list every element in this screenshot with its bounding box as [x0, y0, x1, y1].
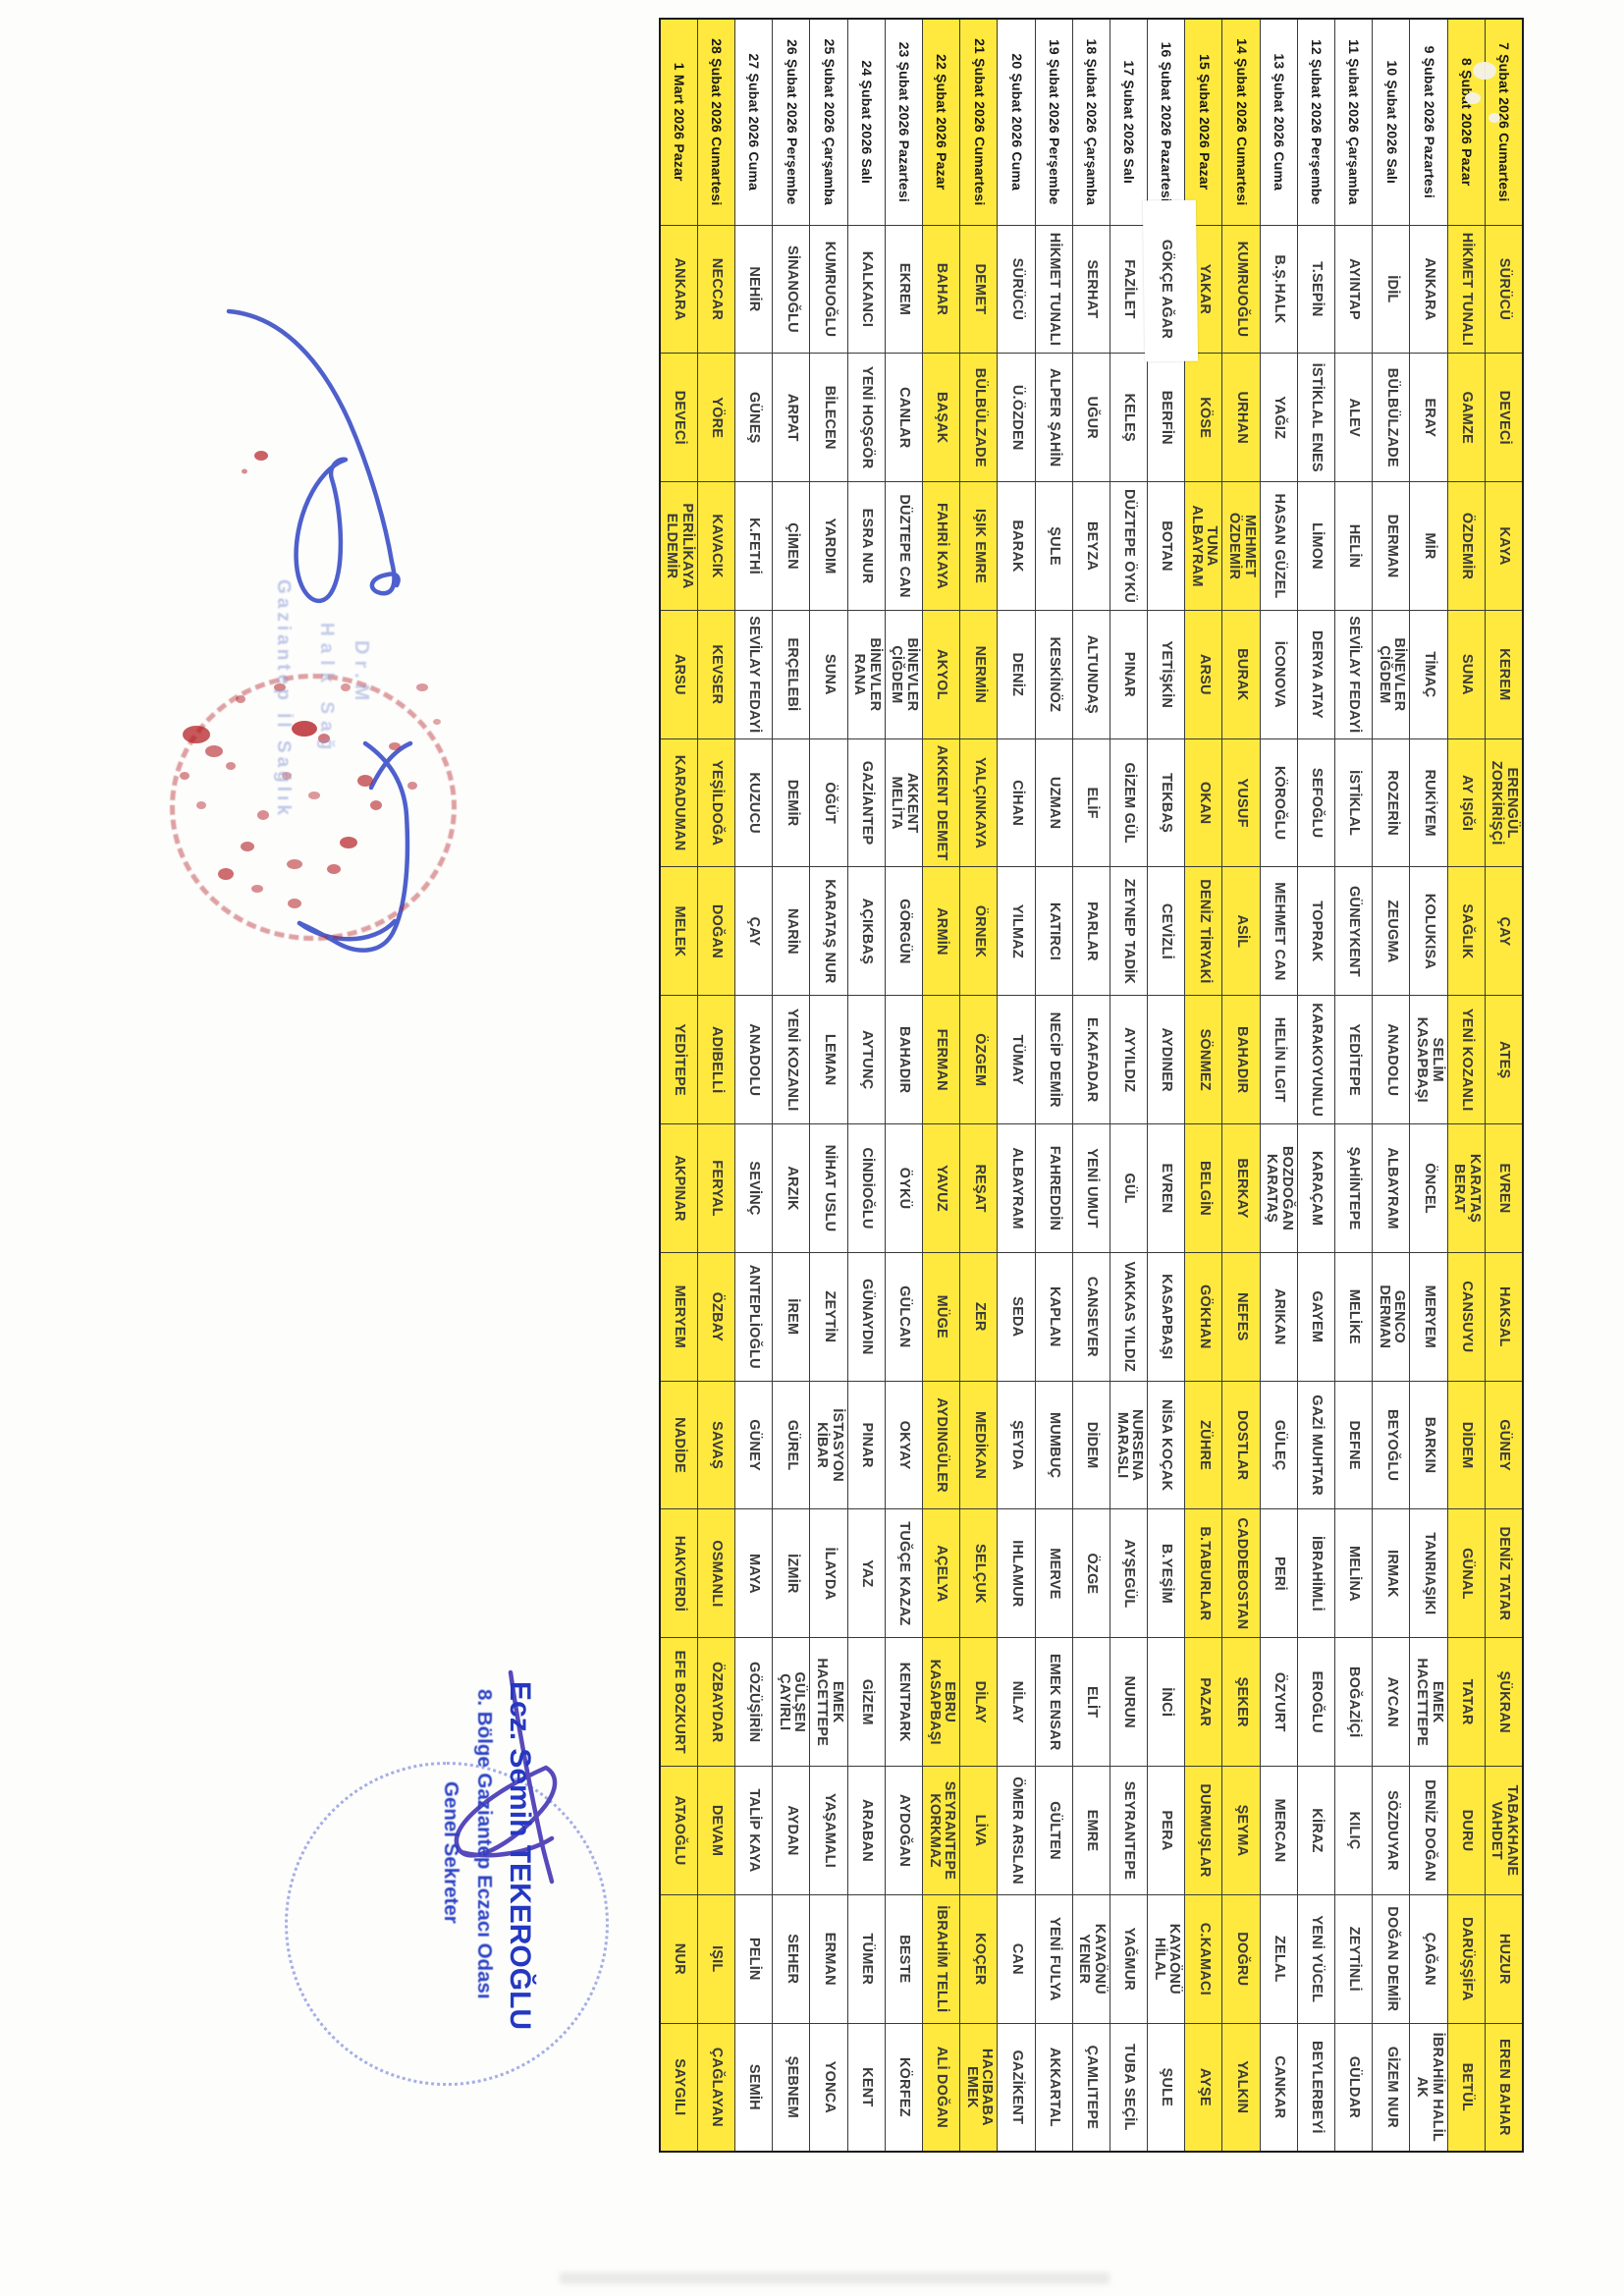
pharmacy-cell: DERMAN: [1373, 482, 1410, 611]
pharmacy-cell: ELİT: [1072, 1638, 1110, 1767]
pharmacy-cell: KAYA: [1485, 482, 1523, 611]
pharmacy-cell: CANSEVER: [1072, 1252, 1110, 1381]
pharmacy-cell: BEYZA: [1072, 482, 1110, 611]
date-row: 14 Şubat 2026 CumartesiKUMRUOĞLUURHANMEH…: [1222, 19, 1260, 2152]
pharmacy-cell: HİKMET TUNALI: [1035, 225, 1072, 354]
pharmacy-cell: ÖZBAYDAR: [697, 1638, 734, 1767]
date-row: 28 Şubat 2026 CumartesiNECCARYÖREKAVACIK…: [697, 19, 734, 2152]
pharmacy-cell: ARABAN: [847, 1767, 885, 1895]
date-cell: 26 Şubat 2026 Perşembe: [773, 19, 810, 225]
duty-roster-body: 7 Şubat 2026 CumartesiSÜRÜCÜDEVECİKAYAKE…: [660, 19, 1523, 2152]
pharmacy-cell: İCONOVA: [1260, 610, 1297, 738]
date-cell: 13 Şubat 2026 Cuma: [1260, 19, 1297, 225]
date-row: 7 Şubat 2026 CumartesiSÜRÜCÜDEVECİKAYAKE…: [1485, 19, 1523, 2152]
pharmacy-cell: ZER: [960, 1252, 998, 1381]
date-row: 17 Şubat 2026 SalıFAZİLETKELEŞDÜZTEPE ÖY…: [1110, 19, 1147, 2152]
pharmacy-cell: ARPAT: [773, 354, 810, 482]
pharmacy-cell: KOLUKISA: [1410, 867, 1447, 996]
pharmacy-cell: GÜREL: [773, 1381, 810, 1509]
pharmacy-cell: ŞEKER: [1222, 1638, 1260, 1767]
pharmacy-cell: İZMİR: [773, 1509, 810, 1638]
pharmacy-cell: ŞEYDA: [998, 1381, 1035, 1509]
pharmacy-cell: AKKENT DEMET: [923, 738, 960, 867]
pharmacy-cell: KÖRFEZ: [885, 2023, 922, 2152]
date-row: 19 Şubat 2026 PerşembeHİKMET TUNALIALPER…: [1035, 19, 1072, 2152]
pharmacy-cell: KÖSE: [1185, 354, 1222, 482]
date-row: 1 Mart 2026 PazarANKARADEVECİPERİLİKAYA …: [660, 19, 698, 2152]
pharmacy-cell: MÜGE: [923, 1252, 960, 1381]
pharmacy-cell: T.SEPİN: [1297, 225, 1334, 354]
pharmacy-cell: ŞÜKRAN: [1485, 1638, 1523, 1767]
pharmacy-cell: KOÇER: [960, 1894, 998, 2023]
pharmacy-cell: DOĞAN DEMİR: [1373, 1894, 1410, 2023]
pharmacy-cell: OKYAY: [885, 1381, 922, 1509]
pharmacy-cell: SEHER: [773, 1894, 810, 2023]
pharmacy-cell: AKKARTAL: [1035, 2023, 1072, 2152]
pharmacy-cell: ŞULE: [1035, 482, 1072, 611]
pharmacy-cell: ERENGÜL ZORKİRİŞÇİ: [1485, 738, 1523, 867]
date-row: 24 Şubat 2026 SalıKALKANCIYENİ HOŞGÖRESR…: [847, 19, 885, 2152]
pharmacy-cell: AYCAN: [1373, 1638, 1410, 1767]
date-row: 21 Şubat 2026 CumartesiDEMETBÜLBÜLZADEIŞ…: [960, 19, 998, 2152]
pharmacy-cell: İBRAHİMLİ: [1297, 1509, 1334, 1638]
pharmacy-cell: GÜNEŞ: [735, 354, 773, 482]
pharmacy-cell: TATAR: [1447, 1638, 1485, 1767]
pharmacy-cell: HASAN GÜZEL: [1260, 482, 1297, 611]
pharmacy-cell: K.FETHİ: [735, 482, 773, 611]
pharmacy-cell: KUZUCU: [735, 738, 773, 867]
date-cell: 22 Şubat 2026 Pazar: [923, 19, 960, 225]
pharmacy-cell: DARÜŞŞİFA: [1447, 1894, 1485, 2023]
secretary-title: Genel Sekreter: [439, 1781, 462, 1924]
pharmacy-cell: SEYRANTEPE: [1110, 1767, 1147, 1895]
date-row: 12 Şubat 2026 PerşembeT.SEPİNİSTİKLAL EN…: [1297, 19, 1334, 2152]
pharmacy-cell: ÇAĞAN: [1410, 1894, 1447, 2023]
pharmacy-cell: BİNEVLER RANA: [847, 610, 885, 738]
pharmacy-cell: CİHAN: [998, 738, 1035, 867]
pharmacy-cell: SAYGILI: [660, 2023, 698, 2152]
pharmacy-cell: ANKARA: [660, 225, 698, 354]
pharmacy-cell: B.TABURLAR: [1185, 1509, 1222, 1638]
pharmacy-cell: ARIKAN: [1260, 1252, 1297, 1381]
pharmacy-cell: ANADOLU: [1373, 996, 1410, 1124]
scanned-duty-roster-page: { "roster": { "weekend_color": "#ffe93e"…: [0, 0, 1624, 2296]
pharmacy-cell: DEMİR: [773, 738, 810, 867]
pharmacy-cell: AYDAN: [773, 1767, 810, 1895]
pharmacy-cell: ARMİN: [923, 867, 960, 996]
pharmacy-cell: MERYEM: [1410, 1252, 1447, 1381]
pharmacy-cell: GÜNEY: [735, 1381, 773, 1509]
pharmacy-cell: YENİ FULYA: [1035, 1894, 1072, 2023]
pharmacy-cell: SUNA: [1447, 610, 1485, 738]
duty-roster-table: 7 Şubat 2026 CumartesiSÜRÜCÜDEVECİKAYAKE…: [659, 18, 1524, 2153]
pharmacy-cell: NİHAT USLU: [810, 1124, 847, 1253]
pharmacy-cell: YAVUZ: [923, 1124, 960, 1253]
pharmacy-cell: ANTEPLİOĞLU: [735, 1252, 773, 1381]
pharmacy-cell: DURU: [1447, 1767, 1485, 1895]
rotated-table-region: 7 Şubat 2026 CumartesiSÜRÜCÜDEVECİKAYAKE…: [682, 18, 1524, 2151]
pharmacy-cell: SERHAT: [1072, 225, 1110, 354]
pharmacy-cell: AKKENT MELİTA: [885, 738, 922, 867]
pharmacy-cell: BELGİN: [1185, 1124, 1222, 1253]
pharmacy-cell: CANLAR: [885, 354, 922, 482]
pharmacy-cell: BAHAR: [923, 225, 960, 354]
pharmacy-cell: GAZİANTEP: [847, 738, 885, 867]
pharmacy-cell: KENTPARK: [885, 1638, 922, 1767]
date-row: 11 Şubat 2026 ÇarşambaAYINTAPALEVHELİNSE…: [1335, 19, 1373, 2152]
pharmacy-cell: GÜL: [1110, 1124, 1147, 1253]
pharmacy-cell: ATAOĞLU: [660, 1767, 698, 1895]
pharmacy-cell: SEVİNÇ: [735, 1124, 773, 1253]
pharmacy-cell: ALBAYRAM: [1373, 1124, 1410, 1253]
pharmacy-cell: GAZİ MUHTAR: [1297, 1381, 1334, 1509]
pharmacy-cell: İSTİKLAL: [1335, 738, 1373, 867]
faint-stamp-line-3: Dr.M: [350, 640, 372, 706]
pharmacy-cell: KAYAÖNÜ HİLAL: [1148, 1894, 1185, 2023]
pharmacy-cell: AY IŞIĞI: [1447, 738, 1485, 867]
pharmacy-cell: KÖROĞLU: [1260, 738, 1297, 867]
date-row: 8 Şubat 2026 PazarHİKMET TUNALIGAMZEÖZDE…: [1447, 19, 1485, 2152]
pharmacy-cell: UĞUR: [1072, 354, 1110, 482]
pharmacy-cell: EMRE: [1072, 1767, 1110, 1895]
pharmacy-cell: KENT: [847, 2023, 885, 2152]
pharmacy-cell: BESTE: [885, 1894, 922, 2023]
pharmacy-cell: CİNDİOĞLU: [847, 1124, 885, 1253]
pharmacy-cell: TOPRAK: [1297, 867, 1334, 996]
date-cell: 12 Şubat 2026 Perşembe: [1297, 19, 1334, 225]
pharmacy-cell: GÜLDAR: [1335, 2023, 1373, 2152]
pharmacy-cell: ÖĞÜT: [810, 738, 847, 867]
pharmacy-cell: BAHADIR: [885, 996, 922, 1124]
pharmacy-cell: FERMAN: [923, 996, 960, 1124]
pharmacy-cell: SEFOĞLU: [1297, 738, 1334, 867]
date-cell: 28 Şubat 2026 Cumartesi: [697, 19, 734, 225]
correction-slip-text: GÖKÇE AĞAR: [1159, 240, 1174, 339]
pharmacy-cell: ALTUNDAŞ: [1072, 610, 1110, 738]
date-cell: 27 Şubat 2026 Cuma: [735, 19, 773, 225]
pharmacy-cell: ŞEBNEM: [773, 2023, 810, 2152]
pharmacy-cell: SÜRÜCÜ: [1485, 225, 1523, 354]
pharmacy-cell: PINAR: [847, 1381, 885, 1509]
pharmacy-cell: YENİ KOZANLI: [773, 996, 810, 1124]
pharmacy-cell: YAZ: [847, 1509, 885, 1638]
date-cell: 19 Şubat 2026 Perşembe: [1035, 19, 1072, 225]
pharmacy-cell: UZMAN: [1035, 738, 1072, 867]
pharmacy-cell: AYTUNÇ: [847, 996, 885, 1124]
pharmacy-cell: HACIBABA EMEK: [960, 2023, 998, 2152]
date-cell: 8 Şubat 2026 Pazar: [1447, 19, 1485, 225]
pharmacy-cell: İBRAHİM TELLİ: [923, 1894, 960, 2023]
pharmacy-cell: HUZUR: [1485, 1894, 1523, 2023]
pharmacy-cell: REŞAT: [960, 1124, 998, 1253]
pharmacy-cell: ANADOLU: [735, 996, 773, 1124]
pharmacy-cell: BETÜL: [1447, 2023, 1485, 2152]
pharmacy-cell: FAZİLET: [1110, 225, 1147, 354]
pharmacy-cell: KARAKOYUNLU: [1297, 996, 1334, 1124]
pharmacy-cell: EROĞLU: [1297, 1638, 1334, 1767]
date-cell: 11 Şubat 2026 Çarşamba: [1335, 19, 1373, 225]
pharmacy-cell: MELİNA: [1335, 1509, 1373, 1638]
pharmacy-cell: DİLAY: [960, 1638, 998, 1767]
pharmacy-cell: AYDOĞAN: [885, 1767, 922, 1895]
pharmacy-cell: NİLAY: [998, 1638, 1035, 1767]
pharmacy-cell: SEYRANTEPE KORKMAZ: [923, 1767, 960, 1895]
pharmacy-cell: ADIBELLİ: [697, 996, 734, 1124]
date-cell: 18 Şubat 2026 Çarşamba: [1072, 19, 1110, 225]
pharmacy-cell: TUNA ALBAYRAM: [1185, 482, 1222, 611]
date-cell: 20 Şubat 2026 Cuma: [998, 19, 1035, 225]
pharmacy-cell: TUBA SEÇİL: [1110, 2023, 1147, 2152]
pharmacy-cell: PAZAR: [1185, 1638, 1222, 1767]
date-row: 27 Şubat 2026 CumaNEHİRGÜNEŞK.FETHİSEVİL…: [735, 19, 773, 2152]
pharmacy-cell: NUR: [660, 1894, 698, 2023]
pharmacy-cell: HİKMET TUNALI: [1447, 225, 1485, 354]
pharmacy-cell: DURMUŞLAR: [1185, 1767, 1222, 1895]
pharmacy-cell: BİNEVLER ÇİĞDEM: [1373, 610, 1410, 738]
pharmacy-cell: YILMAZ: [998, 867, 1035, 996]
pharmacy-cell: ERÇELEBİ: [773, 610, 810, 738]
pharmacy-cell: FERYAL: [697, 1124, 734, 1253]
pharmacy-cell: YAĞMUR: [1110, 1894, 1147, 2023]
pharmacy-cell: ESRA NUR: [847, 482, 885, 611]
pharmacy-cell: KAYAÖNÜ YENER: [1072, 1894, 1110, 2023]
pharmacy-cell: KESKİNÖZ: [1035, 610, 1072, 738]
pharmacy-cell: DEVAM: [697, 1767, 734, 1895]
pharmacy-cell: B.Ş.HALK: [1260, 225, 1297, 354]
pharmacy-cell: HAKSAL: [1485, 1252, 1523, 1381]
pharmacy-cell: MELİKE: [1335, 1252, 1373, 1381]
date-cell: 15 Şubat 2026 Pazar: [1185, 19, 1222, 225]
pharmacy-cell: IHLAMUR: [998, 1509, 1035, 1638]
scan-edge-artifact: [560, 2272, 1110, 2284]
pharmacy-cell: BEYOĞLU: [1373, 1381, 1410, 1509]
pharmacy-cell: AÇIKBAŞ: [847, 867, 885, 996]
pharmacy-cell: AYYILDIZ: [1110, 996, 1147, 1124]
pharmacy-cell: TÜMAY: [998, 996, 1035, 1124]
date-cell: 23 Şubat 2026 Pazartesi: [885, 19, 922, 225]
pharmacy-cell: SAVAŞ: [697, 1381, 734, 1509]
pharmacy-cell: AYŞEGÜL: [1110, 1509, 1147, 1638]
pharmacy-cell: YALKIN: [1222, 2023, 1260, 2152]
pharmacy-cell: YENİ KOZANLI: [1447, 996, 1485, 1124]
pharmacy-cell: GİZEM NUR: [1373, 2023, 1410, 2152]
pharmacy-cell: GÜLCAN: [885, 1252, 922, 1381]
pharmacy-cell: BOĞAZİÇİ: [1335, 1638, 1373, 1767]
pharmacy-cell: NEHİR: [735, 225, 773, 354]
pharmacy-cell: CADDEBOSTAN: [1222, 1509, 1260, 1638]
date-row: 26 Şubat 2026 PerşembeSİNANOĞLUARPATÇİME…: [773, 19, 810, 2152]
pharmacy-cell: AKPINAR: [660, 1124, 698, 1253]
pharmacy-cell: GÜLTEN: [1035, 1767, 1072, 1895]
pharmacy-cell: E.KAFADAR: [1072, 996, 1110, 1124]
pharmacy-cell: YARDIM: [810, 482, 847, 611]
pharmacy-cell: ÖNCEL: [1410, 1124, 1447, 1253]
pharmacy-cell: BARKIN: [1410, 1381, 1447, 1509]
pharmacy-cell: EBRU KASAPBAŞI: [923, 1638, 960, 1767]
pharmacy-cell: NADİDE: [660, 1381, 698, 1509]
pharmacy-cell: DOĞAN: [697, 867, 734, 996]
pharmacy-cell: CANKAR: [1260, 2023, 1297, 2152]
pharmacy-cell: GÖKHAN: [1185, 1252, 1222, 1381]
pharmacy-cell: EMEK HACETTEPE: [810, 1638, 847, 1767]
pharmacy-cell: SUNA: [810, 610, 847, 738]
pharmacy-cell: ASİL: [1222, 867, 1260, 996]
pharmacy-cell: İBRAHİM HALİL AK: [1410, 2023, 1447, 2152]
pharmacy-cell: GAYEM: [1297, 1252, 1334, 1381]
pharmacy-cell: DEMET: [960, 225, 998, 354]
pharmacy-cell: ÇAMLITEPE: [1072, 2023, 1110, 2152]
pharmacy-cell: ŞEYMA: [1222, 1767, 1260, 1895]
pharmacy-cell: İREM: [773, 1252, 810, 1381]
date-cell: 14 Şubat 2026 Cumartesi: [1222, 19, 1260, 225]
pharmacy-cell: ZEUGMA: [1373, 867, 1410, 996]
pharmacy-cell: KEREM: [1485, 610, 1523, 738]
pharmacy-cell: ZELAL: [1260, 1894, 1297, 2023]
pharmacy-cell: TALİP KAYA: [735, 1767, 773, 1895]
pharmacy-cell: DENİZ DOĞAN: [1410, 1767, 1447, 1895]
date-cell: 7 Şubat 2026 Cumartesi: [1485, 19, 1523, 225]
pharmacy-cell: YEDİTEPE: [660, 996, 698, 1124]
pharmacy-cell: GİZEM: [847, 1638, 885, 1767]
pharmacy-cell: GÜNAL: [1447, 1509, 1485, 1638]
pharmacy-cell: CAN: [998, 1894, 1035, 2023]
pharmacy-cell: TİMAÇ: [1410, 610, 1447, 738]
pharmacy-cell: ERAY: [1410, 354, 1447, 482]
pharmacy-cell: GAZİKENT: [998, 2023, 1035, 2152]
pharmacy-cell: GÜLEÇ: [1260, 1381, 1297, 1509]
pharmacy-cell: GENCO DERMAN: [1373, 1252, 1410, 1381]
pharmacy-cell: HELİN ILGIT: [1260, 996, 1297, 1124]
pharmacy-cell: BOTAN: [1148, 482, 1185, 611]
pharmacy-cell: BERKAY: [1222, 1124, 1260, 1253]
pharmacy-cell: OKAN: [1185, 738, 1222, 867]
pharmacy-cell: YALÇINKAYA: [960, 738, 998, 867]
pharmacy-cell: BAHADIR: [1222, 996, 1260, 1124]
pharmacy-cell: EVREN: [1485, 1124, 1523, 1253]
pharmacy-cell: GAMZE: [1447, 354, 1485, 482]
pharmacy-cell: CEVİZLİ: [1148, 867, 1185, 996]
pharmacy-cell: ÇİMEN: [773, 482, 810, 611]
date-cell: 16 Şubat 2026 Pazartesi: [1148, 19, 1185, 225]
pharmacy-cell: SEMİH: [735, 2023, 773, 2152]
date-cell: 25 Şubat 2026 Çarşamba: [810, 19, 847, 225]
date-row: 9 Şubat 2026 PazartesiANKARAERAYMİRTİMAÇ…: [1410, 19, 1447, 2152]
pharmacy-cell: FAHREDDİN: [1035, 1124, 1072, 1253]
pharmacy-cell: BÜLBÜLZADE: [1373, 354, 1410, 482]
pharmacy-cell: MERCAN: [1260, 1767, 1297, 1895]
pharmacy-cell: AKYOL: [923, 610, 960, 738]
date-row: 25 Şubat 2026 ÇarşambaKUMRUOĞLUBİLECENYA…: [810, 19, 847, 2152]
pharmacy-cell: YENİ YÜCEL: [1297, 1894, 1334, 2023]
pharmacy-cell: KEVSER: [697, 610, 734, 738]
pharmacy-cell: ÖYKÜ: [885, 1124, 922, 1253]
pharmacy-cell: RUKİYEM: [1410, 738, 1447, 867]
pharmacy-cell: PARLAR: [1072, 867, 1110, 996]
pharmacy-cell: GÜNEY: [1485, 1381, 1523, 1509]
pharmacy-cell: ZEYNEP TADİK: [1110, 867, 1147, 996]
pharmacy-cell: ATEŞ: [1485, 996, 1523, 1124]
pharmacy-cell: KASAPBAŞI: [1148, 1252, 1185, 1381]
pharmacy-cell: NURSENA MARASLI: [1110, 1381, 1147, 1509]
pharmacy-cell: EKREM: [885, 225, 922, 354]
pharmacy-cell: KARAÇAM: [1297, 1124, 1334, 1253]
pharmacy-cell: EMEK HACETTEPE: [1410, 1638, 1447, 1767]
pharmacy-cell: DENİZ TİRYAKİ: [1185, 867, 1222, 996]
pharmacy-cell: AYDINGÜLER: [923, 1381, 960, 1509]
pharmacy-cell: YONCA: [810, 2023, 847, 2152]
pharmacy-cell: ZEYTİNLİ: [1335, 1894, 1373, 2023]
pharmacy-cell: BİNEVLER ÇİĞDEM: [885, 610, 922, 738]
pharmacy-cell: TUĞÇE KAZAZ: [885, 1509, 922, 1638]
pharmacy-cell: NERMİN: [960, 610, 998, 738]
pharmacy-cell: AYINTAP: [1335, 225, 1373, 354]
pharmacy-cell: EMEK ENSAR: [1035, 1638, 1072, 1767]
pharmacy-cell: DOSTLAR: [1222, 1381, 1260, 1509]
pharmacy-cell: LEMAN: [810, 996, 847, 1124]
rotation-wrapper: 7 Şubat 2026 CumartesiSÜRÜCÜDEVECİKAYAKE…: [682, 18, 1524, 2151]
pharmacy-cell: MERYEM: [660, 1252, 698, 1381]
pharmacy-cell: PERİLİKAYA ELDEMİR: [660, 482, 698, 611]
pharmacy-cell: CANSUYU: [1447, 1252, 1485, 1381]
pharmacy-cell: YAĞIZ: [1260, 354, 1297, 482]
pharmacy-cell: IŞIL: [697, 1894, 734, 2023]
pharmacy-cell: BOZDOĞAN KARATAŞ: [1260, 1124, 1297, 1253]
pharmacy-cell: KUMRUOĞLU: [810, 225, 847, 354]
pharmacy-cell: Ü.ÖZDEN: [998, 354, 1035, 482]
faint-stamp-line-2: Halk Sağ: [315, 623, 337, 756]
pharmacy-cell: MEHMET ÖZDEMİR: [1222, 482, 1260, 611]
pharmacy-cell: KATIRCI: [1035, 867, 1072, 996]
pharmacy-cell: ROZERİN: [1373, 738, 1410, 867]
pharmacy-cell: ÇAY: [1485, 867, 1523, 996]
pharmacy-cell: EFE BOZKURT: [660, 1638, 698, 1767]
pharmacy-cell: BURAK: [1222, 610, 1260, 738]
pharmacy-cell: KARADUMAN: [660, 738, 698, 867]
pharmacy-cell: YUSUF: [1222, 738, 1260, 867]
pharmacy-cell: KILIÇ: [1335, 1767, 1373, 1895]
date-cell: 9 Şubat 2026 Pazartesi: [1410, 19, 1447, 225]
pharmacy-cell: YETİŞKİN: [1148, 610, 1185, 738]
pharmacy-cell: GÜNEYKENT: [1335, 867, 1373, 996]
pharmacy-cell: BERFİN: [1148, 354, 1185, 482]
pharmacy-cell: ALEV: [1335, 354, 1373, 482]
date-row: 20 Şubat 2026 CumaSÜRÜCÜÜ.ÖZDENBARAKDENİ…: [998, 19, 1035, 2152]
pharmacy-cell: SÜRÜCÜ: [998, 225, 1035, 354]
pharmacy-cell: B.YEŞİM: [1148, 1509, 1185, 1638]
date-row: 22 Şubat 2026 PazarBAHARBAŞAKFAHRİ KAYAA…: [923, 19, 960, 2152]
pharmacy-cell: DİDEM: [1447, 1381, 1485, 1509]
pharmacy-cell: MAYA: [735, 1509, 773, 1638]
pharmacy-cell: DEVECİ: [660, 354, 698, 482]
pharmacy-cell: TEKBAŞ: [1148, 738, 1185, 867]
pharmacy-cell: ŞULE: [1148, 2023, 1185, 2152]
pharmacy-cell: C.KAMACI: [1185, 1894, 1222, 2023]
pharmacy-cell: IRMAK: [1373, 1509, 1410, 1638]
pharmacy-cell: KİRAZ: [1297, 1767, 1334, 1895]
red-round-seal: [170, 674, 457, 941]
pharmacy-cell: ÖZBAY: [697, 1252, 734, 1381]
pharmacy-cell: NURUN: [1110, 1638, 1147, 1767]
pharmacy-cell: TABAKHANE VAHDET: [1485, 1767, 1523, 1895]
pharmacy-cell: İNCİ: [1148, 1638, 1185, 1767]
pharmacy-cell: DİDEM: [1072, 1381, 1110, 1509]
pharmacy-cell: ÇAĞLAYAN: [697, 2023, 734, 2152]
pharmacy-cell: TÜMER: [847, 1894, 885, 2023]
pharmacy-cell: ÖRNEK: [960, 867, 998, 996]
pharmacy-cell: GİZEM GÜL: [1110, 738, 1147, 867]
pharmacy-cell: LİVA: [960, 1767, 998, 1895]
date-cell: 10 Şubat 2026 Salı: [1373, 19, 1410, 225]
